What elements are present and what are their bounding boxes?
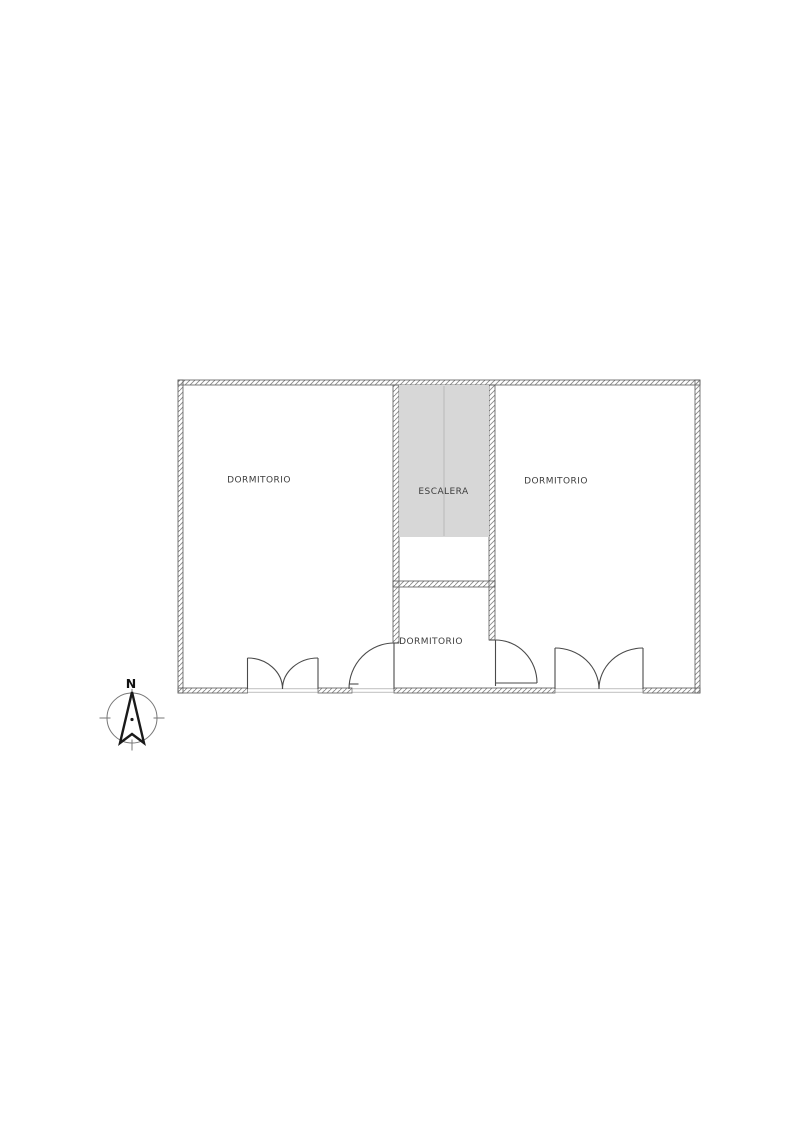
wall-bottom-segment <box>318 688 352 693</box>
staircase <box>399 385 489 537</box>
wall-top <box>178 380 700 385</box>
doors <box>248 640 644 689</box>
door-double-left <box>248 658 319 689</box>
wall-right <box>695 380 700 693</box>
door-single-right <box>489 640 537 686</box>
wall-stair-landing <box>393 581 495 587</box>
north-label: N <box>126 676 136 691</box>
compass-center-dot <box>130 718 133 721</box>
door-opening-sill <box>352 689 394 692</box>
room-label-dormitorio-bottom: DORMITORIO <box>399 637 463 647</box>
north-arrow-icon <box>120 692 144 743</box>
wall-bottom-segment <box>178 688 248 693</box>
room-label-dormitorio-right: DORMITORIO <box>524 477 588 487</box>
door-opening-sill <box>555 689 643 692</box>
wall-bottom-segment <box>643 688 700 693</box>
room-label-escalera: ESCALERA <box>418 487 469 497</box>
door-double-right <box>555 648 643 689</box>
page-canvas: DORMITORIO ESCALERA DORMITORIO DORMITORI… <box>0 0 800 1131</box>
north-compass: N <box>100 676 165 751</box>
door-single-left <box>349 643 399 689</box>
wall-bottom-segment <box>394 688 555 693</box>
wall-stair-shaft-right <box>489 385 495 640</box>
door-opening-sill <box>248 689 319 692</box>
floor-plan: DORMITORIO ESCALERA DORMITORIO DORMITORI… <box>0 0 800 1131</box>
wall-left <box>178 380 183 693</box>
wall-stair-shaft-left <box>393 385 399 643</box>
room-label-dormitorio-left: DORMITORIO <box>227 476 291 486</box>
